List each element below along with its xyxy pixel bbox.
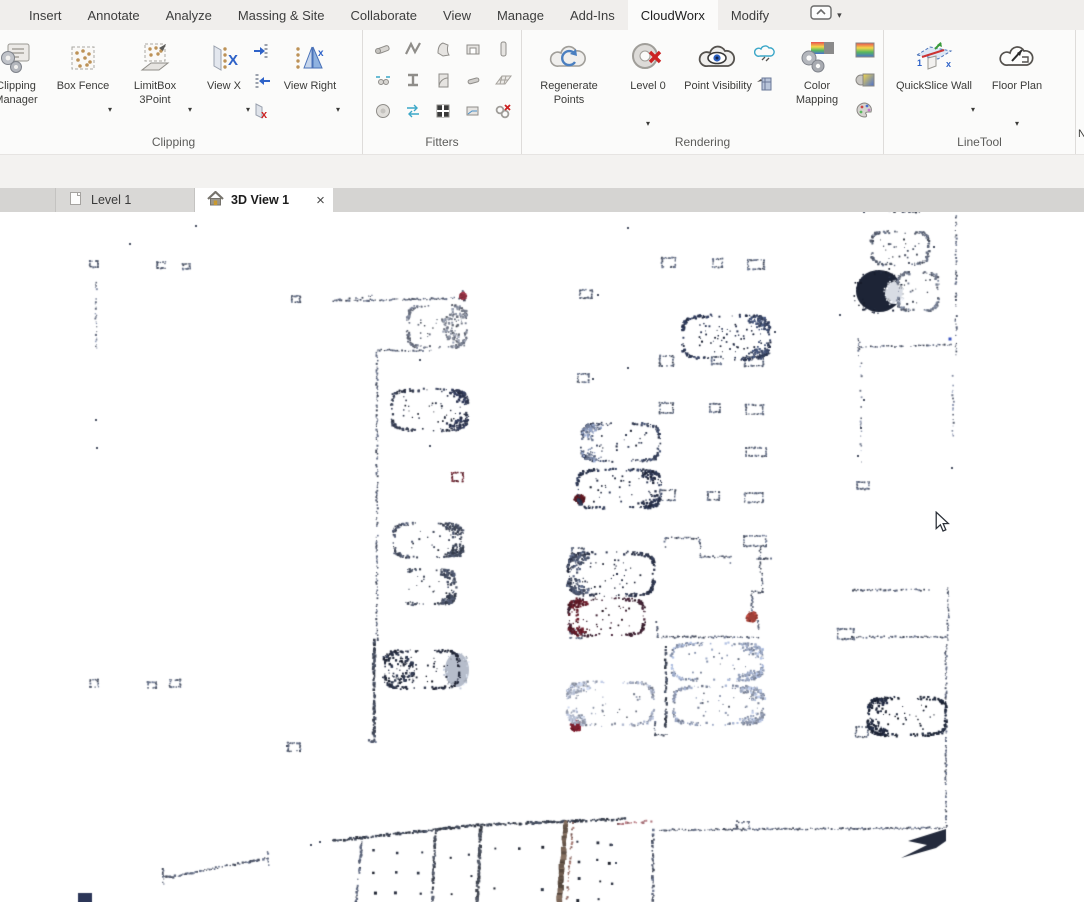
sphere-fitter-button[interactable] — [368, 98, 398, 129]
monitor-icon — [464, 102, 482, 125]
group-label-clipping: Clipping — [0, 135, 362, 149]
swap-fittings-icon — [404, 102, 422, 125]
dropdown-caret-icon[interactable]: ▾ — [108, 105, 112, 114]
rendering-small-buttons-2 — [852, 33, 878, 125]
dropdown-caret-icon[interactable]: ▾ — [1015, 119, 1019, 128]
clear-clip-button[interactable]: x — [249, 100, 275, 126]
column-icon — [494, 40, 512, 63]
options-bar — [0, 155, 1084, 188]
button-label: LimitBox 3Point — [119, 79, 191, 108]
polyline-icon — [404, 40, 422, 63]
caret-down-icon: ▾ — [837, 10, 842, 21]
button-label: Floor Plan — [992, 79, 1042, 93]
pipe-fitter-button[interactable] — [368, 36, 398, 67]
cloud-sketch-button[interactable] — [752, 43, 778, 69]
button-label: Level 0 — [630, 79, 665, 93]
menu-tab-manage[interactable]: Manage — [484, 0, 557, 30]
svg-text:X: X — [228, 52, 238, 69]
arrow-from-plane-icon — [252, 71, 272, 96]
view-to-clip-button[interactable] — [249, 70, 275, 96]
button-label: View X — [207, 79, 241, 93]
clipping-manager-icon — [0, 38, 33, 78]
menu-tab-insert[interactable]: Insert — [16, 0, 75, 30]
quickslice-wall-button[interactable]: 1x QuickSlice Wall ▾ — [894, 33, 974, 138]
dropdown-caret-icon[interactable]: ▾ — [971, 105, 975, 114]
view-tab-label: 3D View 1 — [231, 193, 289, 207]
window-icon — [434, 102, 452, 125]
color-mapping-icon — [797, 38, 837, 78]
conduit-fitter-button[interactable] — [458, 67, 488, 98]
dropdown-caret-icon[interactable]: ▾ — [246, 105, 250, 114]
button-label: QuickSlice Wall — [896, 79, 972, 93]
dropdown-caret-icon[interactable]: ▾ — [188, 105, 192, 114]
unlink-fitter-button[interactable] — [488, 98, 518, 129]
clipped-next-group-fragment: N — [1078, 128, 1084, 140]
wall-surface-icon — [434, 40, 452, 63]
floor-plan-icon — [998, 38, 1036, 78]
box-fence-button[interactable]: Box Fence ▾ — [55, 33, 111, 138]
polyline-fitter-button[interactable] — [398, 36, 428, 67]
grid-surface-fitter-button[interactable] — [488, 67, 518, 98]
menu-tab-modify[interactable]: Modify — [718, 0, 782, 30]
conduit-icon — [464, 71, 482, 94]
cloud-sketch-icon — [754, 44, 776, 69]
insert-model-button[interactable] — [752, 73, 778, 99]
point-cloud-view[interactable] — [0, 212, 1084, 902]
find-fitting-icon — [374, 71, 392, 94]
palette-button[interactable] — [852, 99, 878, 125]
group-linetool: 1x QuickSlice Wall ▾ Floor Plan ▾ LineTo… — [884, 30, 1076, 154]
menu-tab-addins[interactable]: Add-Ins — [557, 0, 628, 30]
close-tab-icon[interactable]: × — [316, 193, 325, 208]
view-right-icon: x — [292, 38, 328, 78]
window-fitter-button[interactable] — [428, 98, 458, 129]
plane-red-x-icon: x — [252, 101, 272, 126]
button-label: Regenerate Points — [526, 79, 612, 108]
ribbon-tab-bar: Insert Annotate Analyze Massing & Site C… — [0, 0, 1084, 30]
swap-fittings-button[interactable] — [398, 98, 428, 129]
limitbox-3point-button[interactable]: LimitBox 3Point ▾ — [119, 33, 191, 138]
view-right-button[interactable]: x View Right ▾ — [281, 33, 339, 138]
view-tab-bar: Level 1 3D View 1 × — [0, 188, 1084, 212]
find-fitting-button[interactable] — [368, 67, 398, 98]
svg-text:x: x — [946, 59, 951, 69]
door-fitter-button[interactable] — [428, 67, 458, 98]
clipping-manager-button[interactable]: Clipping Manager — [0, 33, 47, 138]
cloudworx-ribbon: Clipping Manager Box Fence ▾ LimitBox 3P… — [0, 30, 1084, 155]
steel-beam-icon — [404, 71, 422, 94]
sphere-icon — [374, 102, 392, 125]
palette-icon — [855, 101, 875, 124]
group-rendering: Regenerate Points Level 0 ▾ Point Visibi… — [522, 30, 884, 154]
regenerate-points-icon — [549, 38, 589, 78]
group-label-rendering: Rendering — [522, 135, 883, 149]
view-x-icon: X — [207, 38, 241, 78]
image-map-icon — [855, 72, 875, 93]
menu-tab-view[interactable]: View — [430, 0, 484, 30]
level-filter-button[interactable]: Level 0 ▾ — [616, 33, 680, 138]
arrow-into-plane-icon — [252, 41, 272, 66]
button-label: Color Mapping — [784, 79, 850, 108]
svg-text:x: x — [318, 48, 324, 59]
pipe-icon — [374, 40, 392, 63]
application-window: Insert Annotate Analyze Massing & Site C… — [0, 0, 1084, 902]
steel-beam-fitter-button[interactable] — [398, 67, 428, 98]
color-ramp-icon — [855, 42, 875, 63]
home-icon — [207, 191, 224, 209]
clip-to-view-button[interactable] — [249, 40, 275, 66]
dropdown-caret-icon[interactable]: ▾ — [646, 119, 650, 128]
dropdown-caret-icon[interactable]: ▾ — [336, 105, 340, 114]
image-map-button[interactable] — [852, 69, 878, 95]
plan-view-icon — [68, 191, 84, 210]
quickslice-wall-icon: 1x — [913, 38, 955, 78]
box-icon — [464, 40, 482, 63]
view-tab-label: Level 1 — [91, 193, 131, 207]
unlink-icon — [494, 102, 512, 125]
grid-surface-icon — [494, 71, 512, 94]
button-label: Clipping Manager — [0, 79, 47, 108]
menu-tab-cloudworx[interactable]: CloudWorx — [628, 0, 718, 30]
view-x-button[interactable]: X View X ▾ — [199, 33, 249, 138]
door-icon — [434, 71, 452, 94]
ribbon-display-toggle[interactable]: ▾ — [804, 0, 848, 30]
mouse-cursor — [934, 511, 950, 533]
rendering-small-buttons — [752, 33, 778, 99]
group-clipping: Clipping Manager Box Fence ▾ LimitBox 3P… — [0, 30, 363, 154]
color-ramp-button[interactable] — [852, 39, 878, 65]
box-fitter-button[interactable] — [458, 36, 488, 67]
menu-tab-analyze[interactable]: Analyze — [153, 0, 225, 30]
menu-tab-collaborate[interactable]: Collaborate — [338, 0, 431, 30]
minimize-ribbon-icon — [810, 5, 832, 25]
monitor-fitter-button[interactable] — [458, 98, 488, 129]
level-zero-icon — [630, 38, 666, 78]
box-fence-icon — [66, 38, 100, 78]
menu-tab-massing-site[interactable]: Massing & Site — [225, 0, 338, 30]
regenerate-points-button[interactable]: Regenerate Points — [526, 33, 612, 138]
drawing-area[interactable] — [0, 212, 1084, 902]
surface-fitter-button[interactable] — [428, 36, 458, 67]
limitbox-3point-icon — [138, 38, 172, 78]
insert-model-icon — [754, 73, 776, 100]
group-label-linetool: LineTool — [884, 135, 1075, 149]
view-tab-level1[interactable]: Level 1 — [55, 188, 195, 212]
clip-small-buttons: x — [249, 33, 275, 126]
svg-text:x: x — [261, 109, 268, 121]
group-fitters: Fitters — [363, 30, 522, 154]
button-label: View Right — [284, 79, 336, 93]
point-visibility-button[interactable]: Point Visibility — [684, 33, 752, 138]
point-visibility-icon — [698, 38, 738, 78]
view-tab-3dview1[interactable]: 3D View 1 × — [195, 188, 333, 212]
group-label-fitters: Fitters — [363, 135, 521, 149]
button-label: Point Visibility — [684, 79, 752, 93]
floor-plan-button[interactable]: Floor Plan ▾ — [982, 33, 1052, 138]
menu-tab-annotate[interactable]: Annotate — [75, 0, 153, 30]
svg-text:1: 1 — [917, 58, 922, 68]
color-mapping-button[interactable]: Color Mapping — [784, 33, 850, 138]
column-fitter-button[interactable] — [488, 36, 518, 67]
button-label: Box Fence — [57, 79, 110, 93]
